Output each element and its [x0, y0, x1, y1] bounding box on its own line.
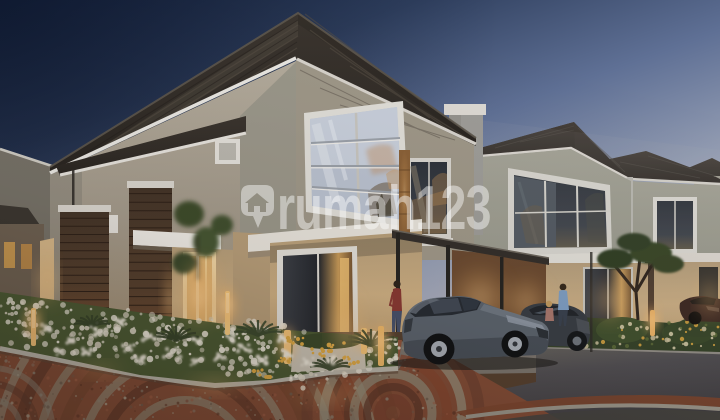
svg-text:rumah123: rumah123	[277, 172, 491, 242]
